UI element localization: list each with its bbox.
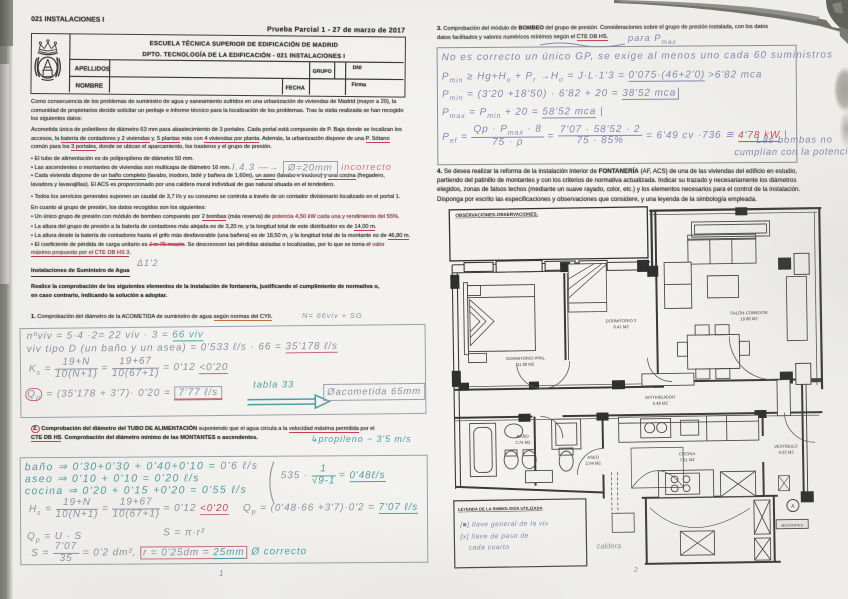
svg-text:18.88 M2: 18.88 M2 — [740, 316, 758, 321]
svg-text:BAÑO: BAÑO — [517, 434, 530, 439]
svg-text:SALÓN-COMEDOR: SALÓN-COMEDOR — [730, 310, 768, 316]
svg-text:3.75 M2: 3.75 M2 — [515, 440, 531, 445]
svg-text:5.49 M2: 5.49 M2 — [653, 400, 669, 405]
svg-text:[■] llave general de la viv: [■] llave general de la viv — [459, 520, 549, 528]
svg-text:11.98 M2: 11.98 M2 — [517, 362, 535, 367]
svg-text:4.02 M2: 4.02 M2 — [778, 450, 794, 455]
svg-text:[x] llave de paso de: [x] llave de paso de — [459, 533, 529, 541]
svg-text:8.41 M2: 8.41 M2 — [613, 324, 629, 329]
svg-text:ASEO: ASEO — [587, 455, 599, 460]
svg-text:DORMITORIO 2: DORMITORIO 2 — [606, 318, 637, 323]
svg-text:DORMITORIO PPAL: DORMITORIO PPAL — [506, 355, 545, 361]
svg-text:COCINA: COCINA — [679, 451, 696, 456]
svg-text:caldera: caldera — [596, 541, 621, 550]
svg-text:MONTANTES: MONTANTES — [781, 523, 803, 527]
svg-text:cada cuarto: cada cuarto — [468, 544, 509, 552]
svg-text:7.51 M2: 7.51 M2 — [680, 457, 696, 462]
svg-text:2.04 M2: 2.04 M2 — [586, 461, 602, 466]
svg-text:DISTRIBUIDOR: DISTRIBUIDOR — [645, 394, 675, 399]
svg-text:VESTÍBULO: VESTÍBULO — [774, 443, 798, 448]
